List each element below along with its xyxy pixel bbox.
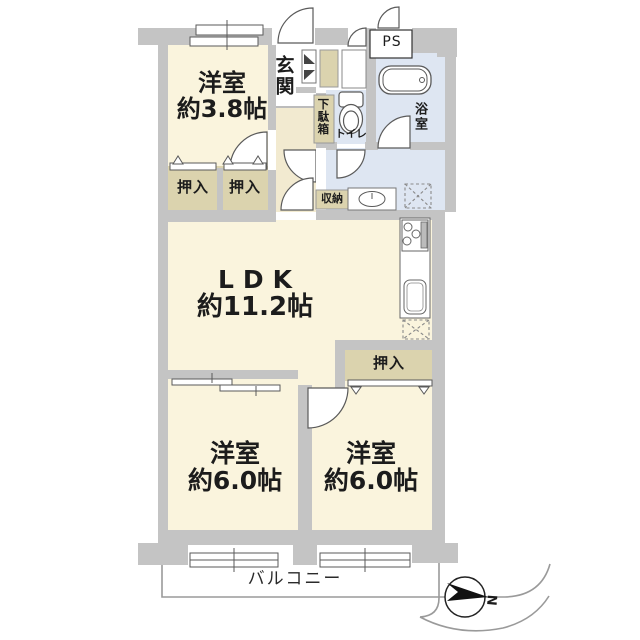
wall-bedroom-right-top [335,340,445,350]
room-size: 約6.0帖 [301,467,441,494]
room-name: 洋室 [152,71,292,97]
room-name: 洋室 [165,440,305,467]
closet-b-label: 押入 [222,179,268,195]
wall-toilet-bottom-b [365,142,378,150]
room-name: LDK [165,266,345,293]
meter-box-door-arc [348,28,366,46]
top-window-outer [196,25,263,35]
wall-bath-bottom [410,142,445,150]
shoe-box-upper [320,50,338,87]
wall-top-b [315,28,348,45]
bedroom-small-label: 洋室 約3.8帖 [152,71,292,123]
closet-c-label: 押入 [349,355,429,371]
bathtub [379,66,431,94]
wall-bottom [158,530,432,545]
wall-closet-c-left [335,350,345,388]
balcony-label: バルコニー [244,570,346,588]
bedroom-right-label: 洋室 約6.0帖 [301,440,441,494]
bedroom-left-label: 洋室 約6.0帖 [165,440,305,494]
pier-bottom-left [138,543,188,565]
wall-ldk-bedroom-left [168,370,298,379]
ldk-partition-row1 [172,379,232,385]
north-arrow [445,577,488,617]
storage-label: 収納 [318,193,346,205]
north-label: N [483,594,498,606]
room-name: 洋室 [301,440,441,467]
wall-below-closets [158,210,276,222]
grill [421,222,427,248]
ldk-label: LDK 約11.2帖 [165,266,345,321]
toilet-label: トイレ [333,129,369,140]
entrance-label: 玄関 [273,55,294,97]
closet-a-label: 押入 [170,179,216,195]
ps-door-arc [378,7,399,28]
floor-plan: 洋室 約3.8帖 LDK 約11.2帖 洋室 約6.0帖 洋室 約6.0帖 玄関… [0,0,640,640]
wall-right-lower [432,210,445,545]
entrance-door-arc [278,8,313,43]
bathtub-drain [420,78,425,83]
shoe-cabinet-label: 下駄箱 [317,98,329,136]
pier-bottom-right [412,543,458,563]
wall-top-c [412,28,437,45]
wall-entrance-stub [296,87,316,93]
pier-bottom-mid [293,545,317,565]
hall-washroom-opening [316,148,326,190]
entrance-cabinet [342,50,366,88]
closet-c-slider [348,380,432,386]
pipe-space-label: PS [378,35,406,50]
wall-right-upper [445,45,456,212]
room-size: 約11.2帖 [165,293,345,321]
bathroom-label: 浴室 [412,102,426,132]
room-size: 約3.8帖 [152,97,292,123]
top-window-inner [190,37,258,46]
room-size: 約6.0帖 [165,467,305,494]
ldk-partition-row2 [220,385,280,391]
